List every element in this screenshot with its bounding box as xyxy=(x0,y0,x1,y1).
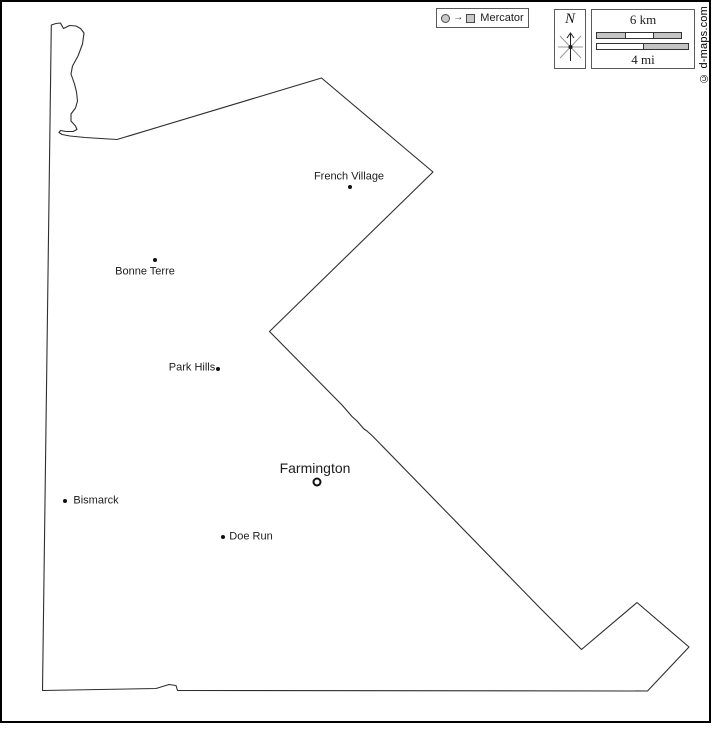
compass-north-label: N xyxy=(565,11,575,28)
city-marker-bonne-terre xyxy=(153,258,157,262)
city-label-park-hills: Park Hills xyxy=(169,362,215,375)
compass-rose: N xyxy=(554,9,586,69)
compass-star-icon xyxy=(556,28,585,64)
scale-segment xyxy=(643,44,689,49)
scale-mi-label: 4 mi xyxy=(592,52,694,68)
scale-segment xyxy=(625,33,653,38)
city-label-bonne-terre: Bonne Terre xyxy=(115,266,175,279)
copyright-notice: © d-maps.com xyxy=(698,6,710,84)
city-label-farmington: Farmington xyxy=(280,460,351,476)
city-label-bismarck: Bismarck xyxy=(73,495,118,508)
scale-mi-bar xyxy=(596,43,689,50)
scale-segment xyxy=(597,33,625,38)
city-marker-park-hills xyxy=(216,367,220,371)
map-canvas: → Mercator N 6 km 4 mi © d-maps.com F xyxy=(0,0,713,729)
scale-bar: 6 km 4 mi xyxy=(591,9,695,69)
projection-arrow-icon: → xyxy=(453,13,463,23)
county-boundary-path xyxy=(43,23,690,691)
city-marker-farmington xyxy=(313,478,322,487)
projection-name-label: Mercator xyxy=(480,12,523,24)
city-marker-french-village xyxy=(348,185,352,189)
scale-km-bar xyxy=(596,32,682,39)
scale-segment xyxy=(597,44,643,49)
scale-segment xyxy=(653,33,681,38)
globe-circle-icon xyxy=(441,14,450,23)
city-label-doe-run: Doe Run xyxy=(229,531,272,544)
county-outline-map xyxy=(0,0,713,729)
scale-km-label: 6 km xyxy=(592,12,694,28)
city-marker-bismarck xyxy=(63,499,67,503)
projection-legend: → Mercator xyxy=(436,8,529,28)
map-frame xyxy=(1,1,710,722)
city-label-french-village: French Village xyxy=(314,171,384,184)
city-marker-doe-run xyxy=(221,535,225,539)
flat-map-square-icon xyxy=(466,14,475,23)
